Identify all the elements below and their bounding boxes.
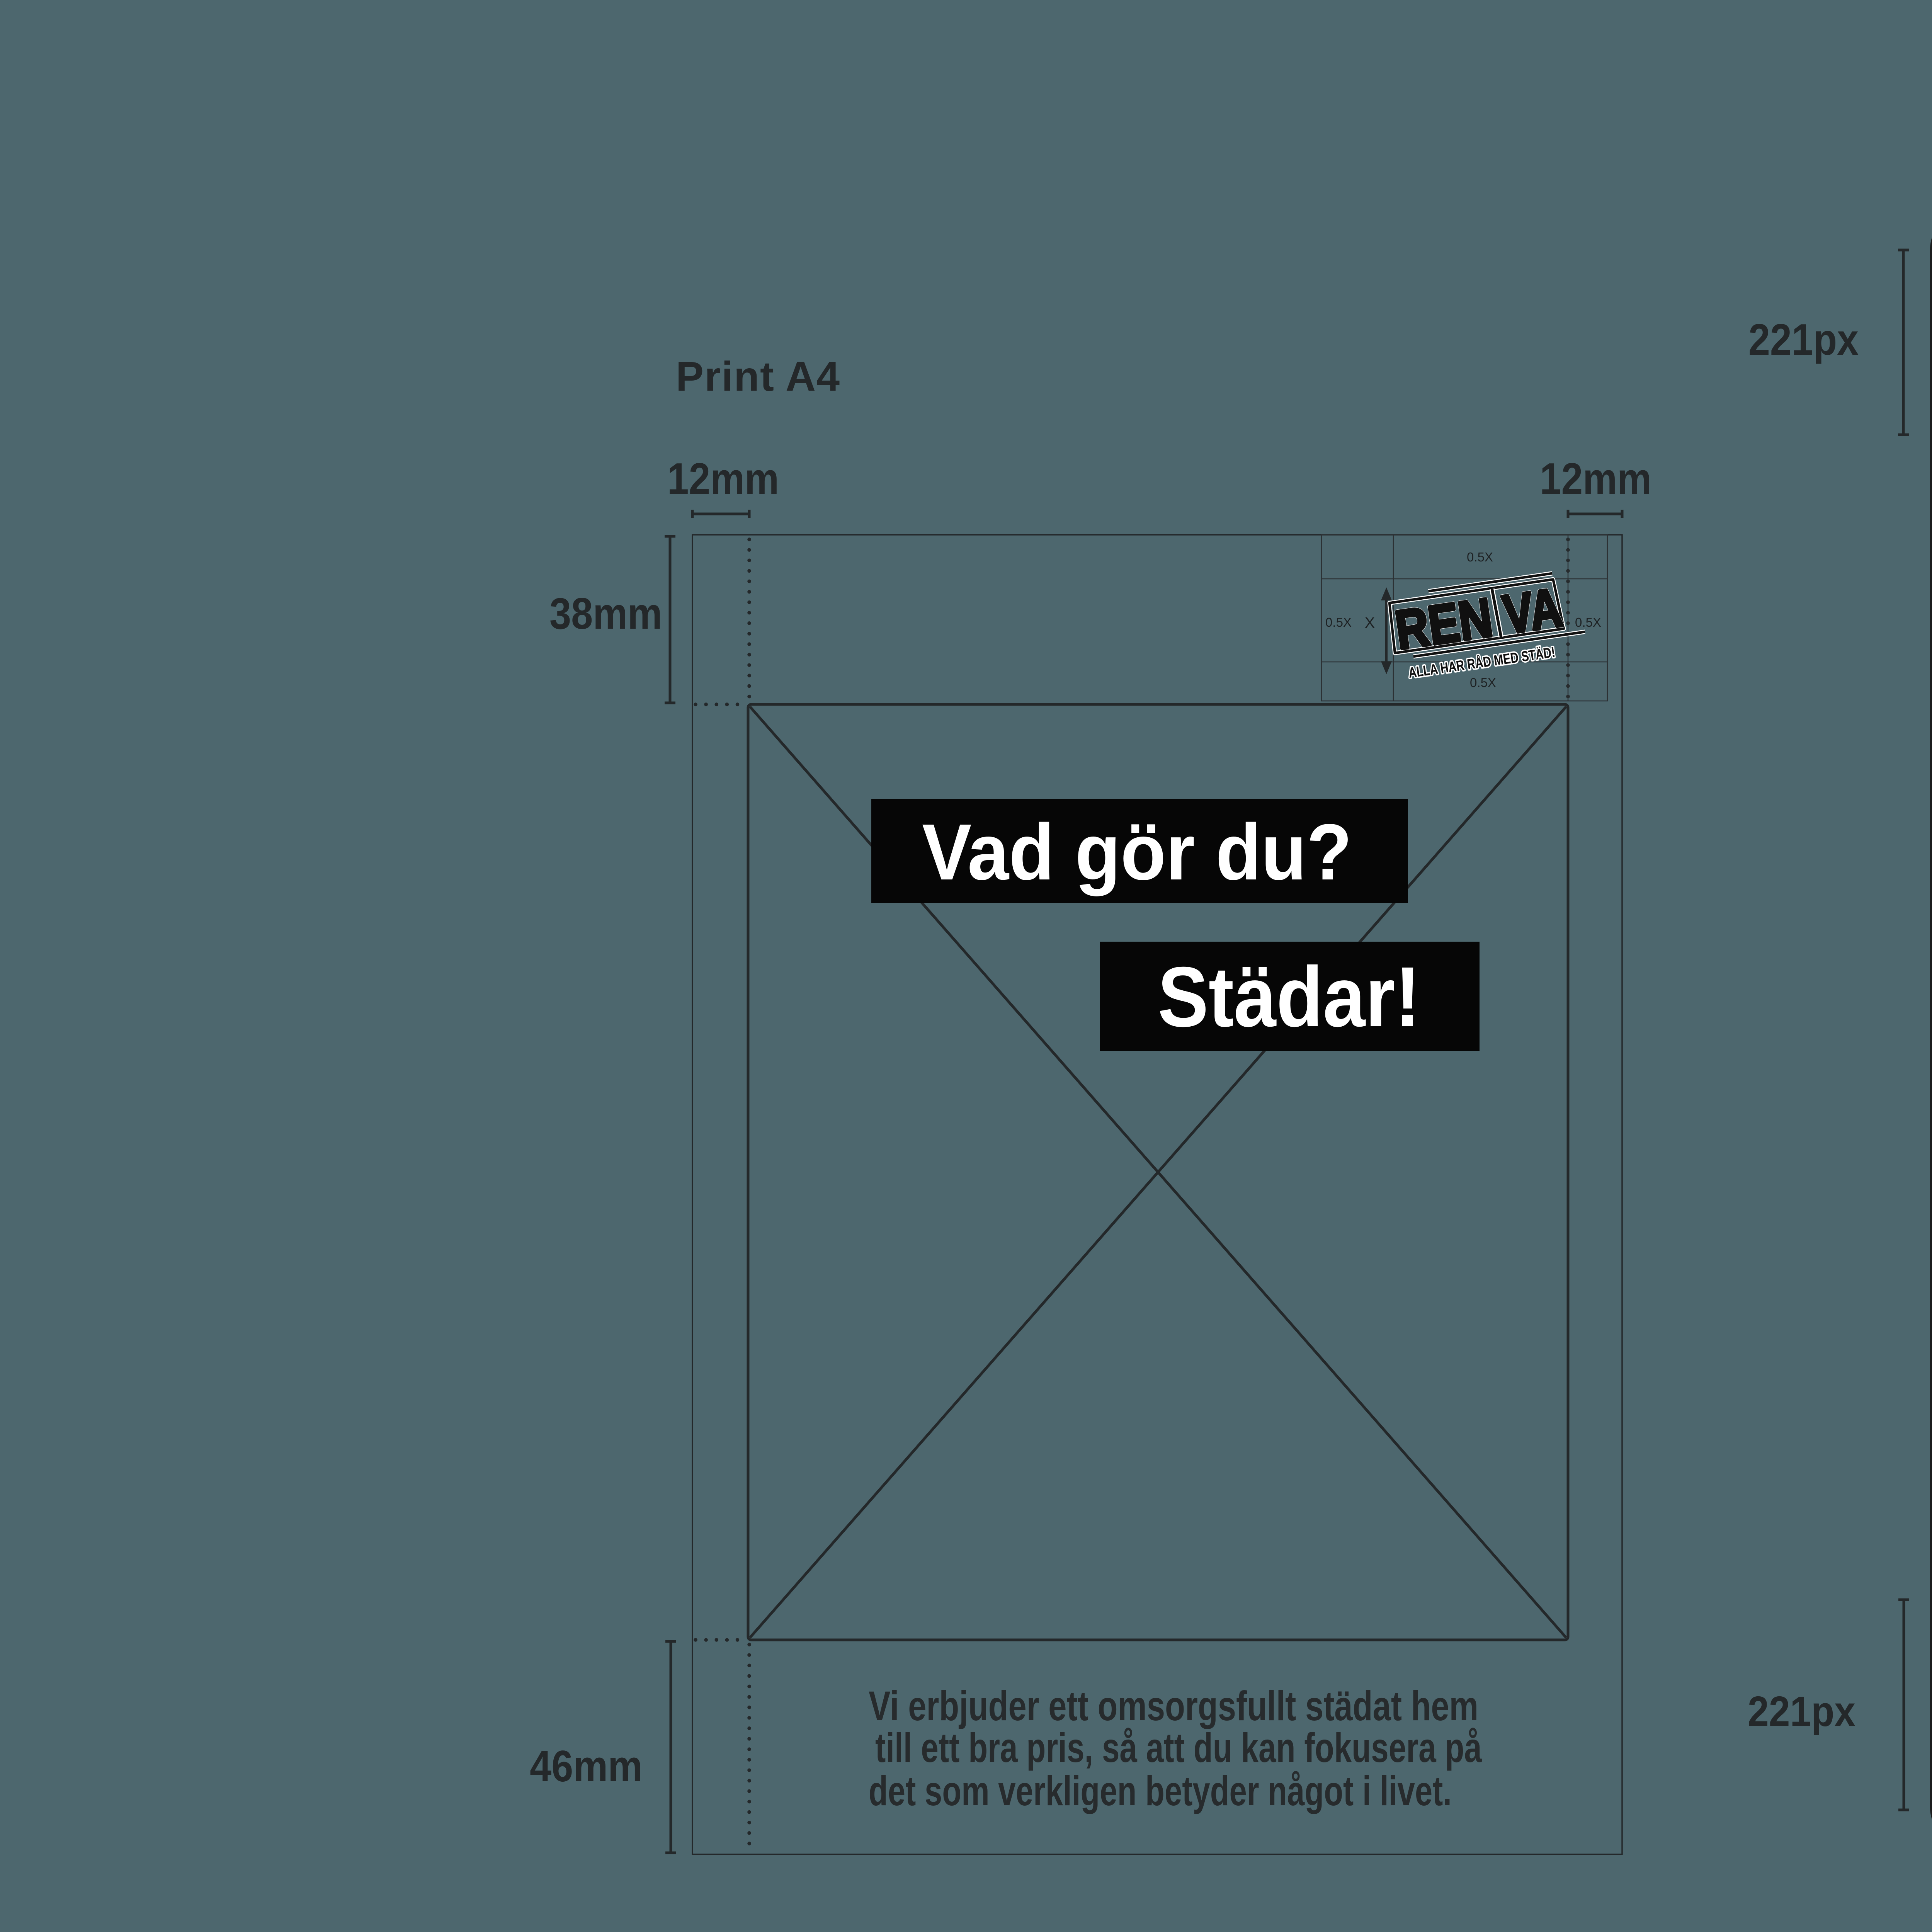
svg-text:till ett bra pris, så att du k: till ett bra pris, så att du kan fokuser… (875, 1724, 1482, 1771)
svg-text:221px: 221px (1748, 1688, 1855, 1735)
svg-text:Städar!: Städar! (1158, 949, 1420, 1044)
svg-text:Print A4: Print A4 (676, 353, 840, 400)
svg-text:0.5X: 0.5X (1470, 675, 1496, 690)
svg-text:0.5X: 0.5X (1467, 550, 1493, 564)
svg-text:38mm: 38mm (549, 589, 662, 638)
svg-text:Vi erbjuder ett omsorgsfullt s: Vi erbjuder ett omsorgsfullt städat hem (869, 1682, 1478, 1729)
svg-text:0.5X: 0.5X (1325, 615, 1352, 629)
svg-text:221px: 221px (1748, 315, 1859, 364)
svg-text:det som verkligen betyder någo: det som verkligen betyder något i livet. (869, 1767, 1452, 1814)
svg-text:12mm: 12mm (1540, 454, 1651, 503)
svg-text:Vad gör du?: Vad gör du? (922, 808, 1352, 896)
svg-text:12mm: 12mm (667, 454, 779, 503)
svg-text:X: X (1365, 614, 1375, 631)
svg-text:0.5X: 0.5X (1575, 615, 1601, 629)
svg-text:46mm: 46mm (530, 1742, 643, 1791)
